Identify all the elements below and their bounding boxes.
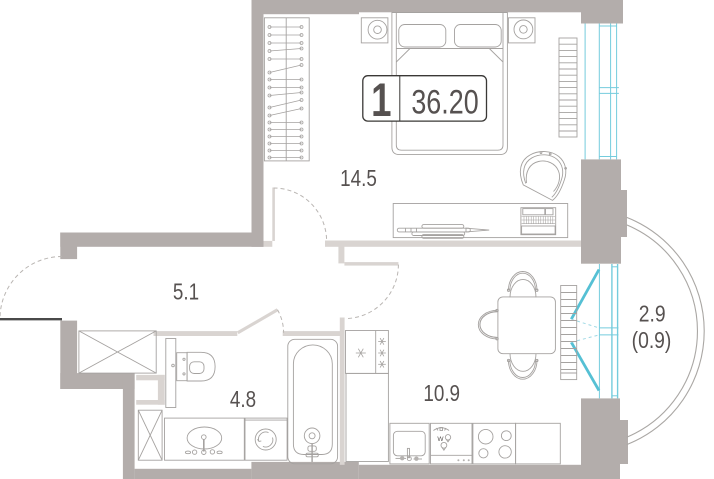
- svg-text:14.5: 14.5: [340, 166, 377, 191]
- svg-text:1: 1: [371, 73, 391, 125]
- svg-text:10.9: 10.9: [423, 381, 460, 406]
- svg-text:W: W: [437, 436, 444, 443]
- svg-text:4.8: 4.8: [230, 387, 256, 412]
- svg-text:(0.9): (0.9): [632, 329, 672, 354]
- svg-text:36.20: 36.20: [411, 82, 478, 121]
- svg-text:2.9: 2.9: [639, 302, 666, 327]
- svg-text:5.1: 5.1: [173, 280, 199, 305]
